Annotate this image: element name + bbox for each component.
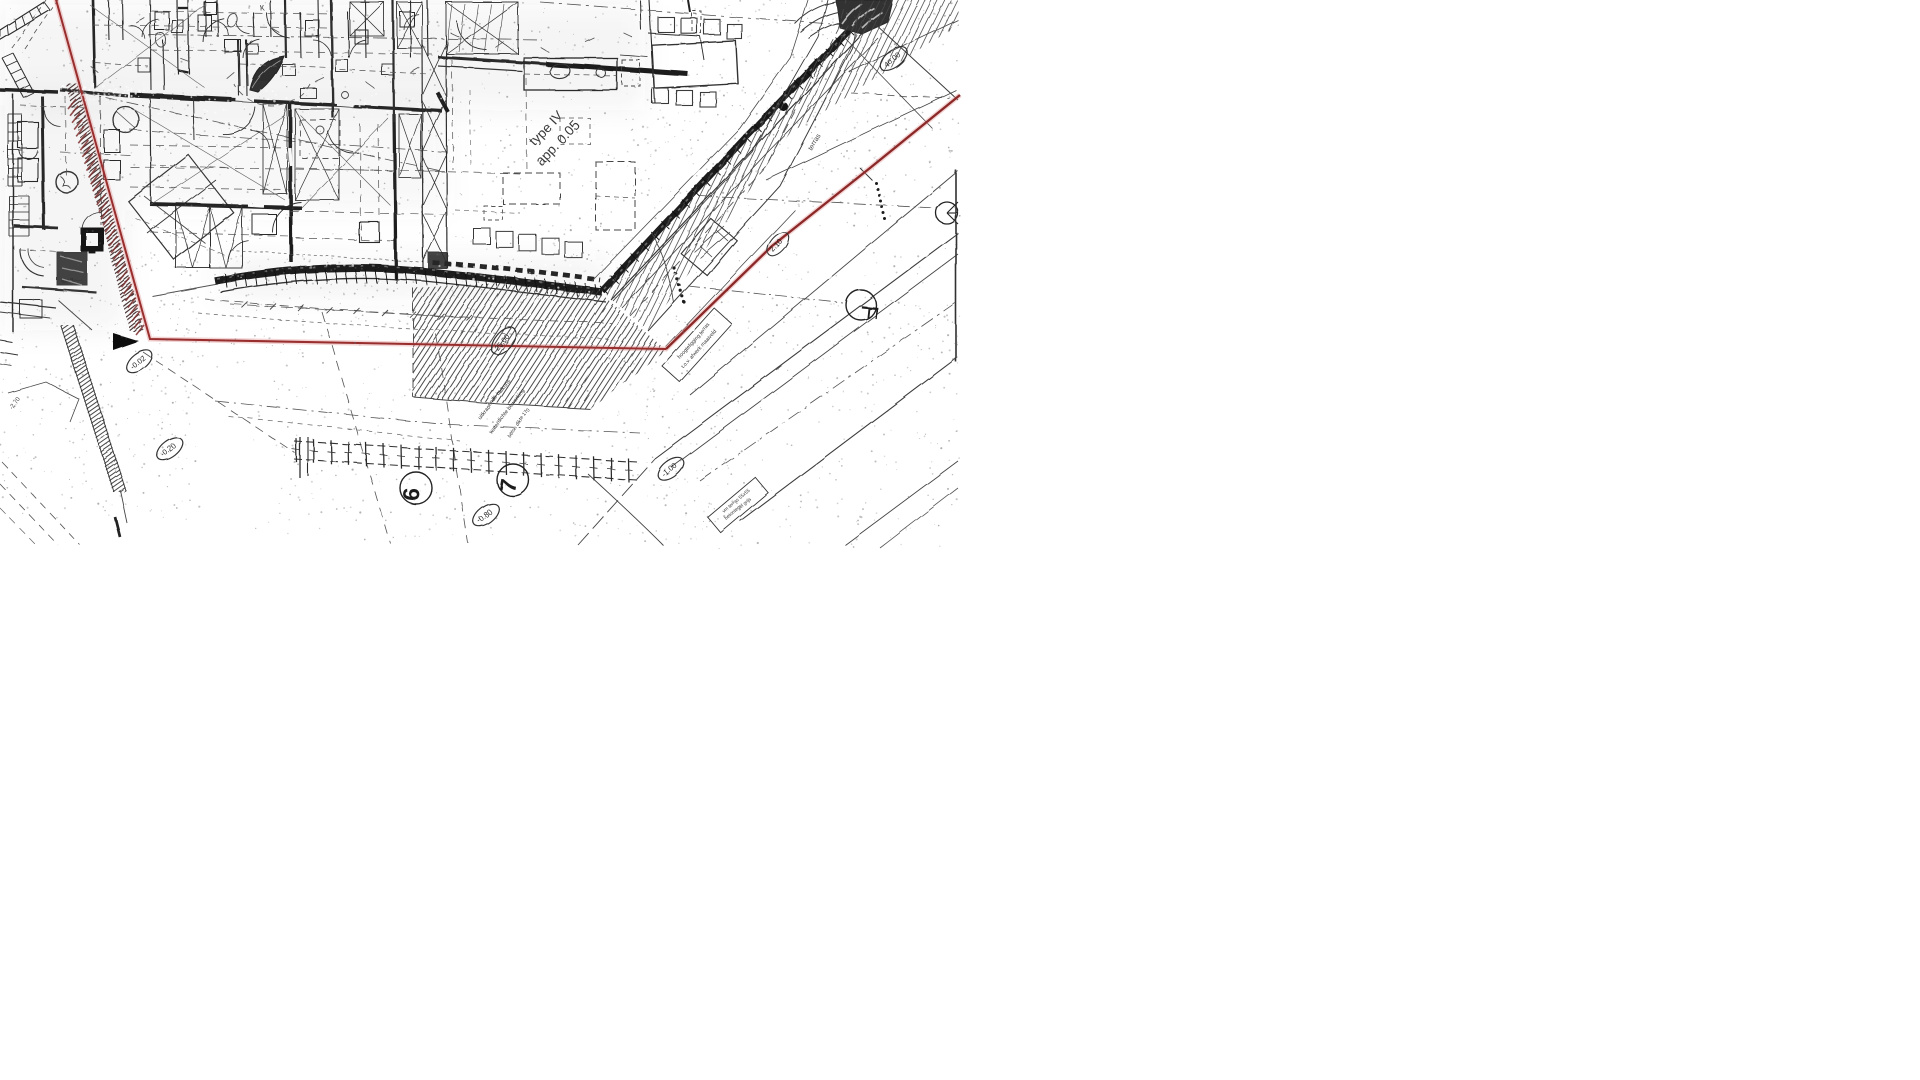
svg-text:F: F xyxy=(854,303,882,320)
svg-text:6: 6 xyxy=(398,487,425,502)
